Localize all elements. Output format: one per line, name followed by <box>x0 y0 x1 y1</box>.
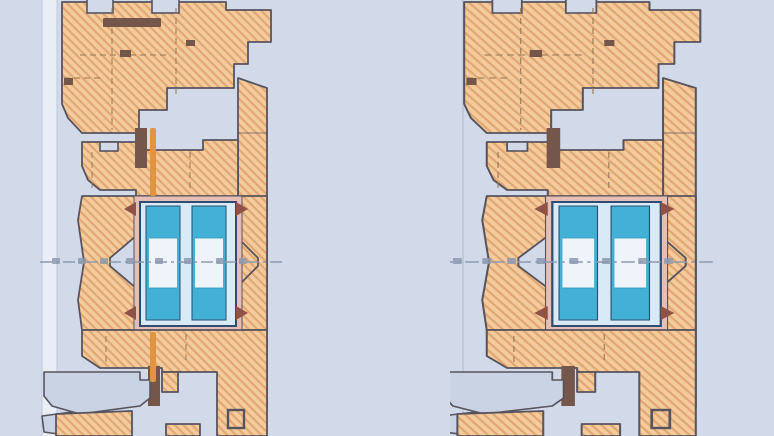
window-section-left <box>40 0 285 436</box>
page-background <box>0 0 774 436</box>
section-drawing <box>450 0 716 436</box>
dimension-band <box>42 0 57 436</box>
section-drawing <box>40 0 285 436</box>
seal-strip <box>103 18 161 27</box>
window-section-right <box>450 0 730 436</box>
